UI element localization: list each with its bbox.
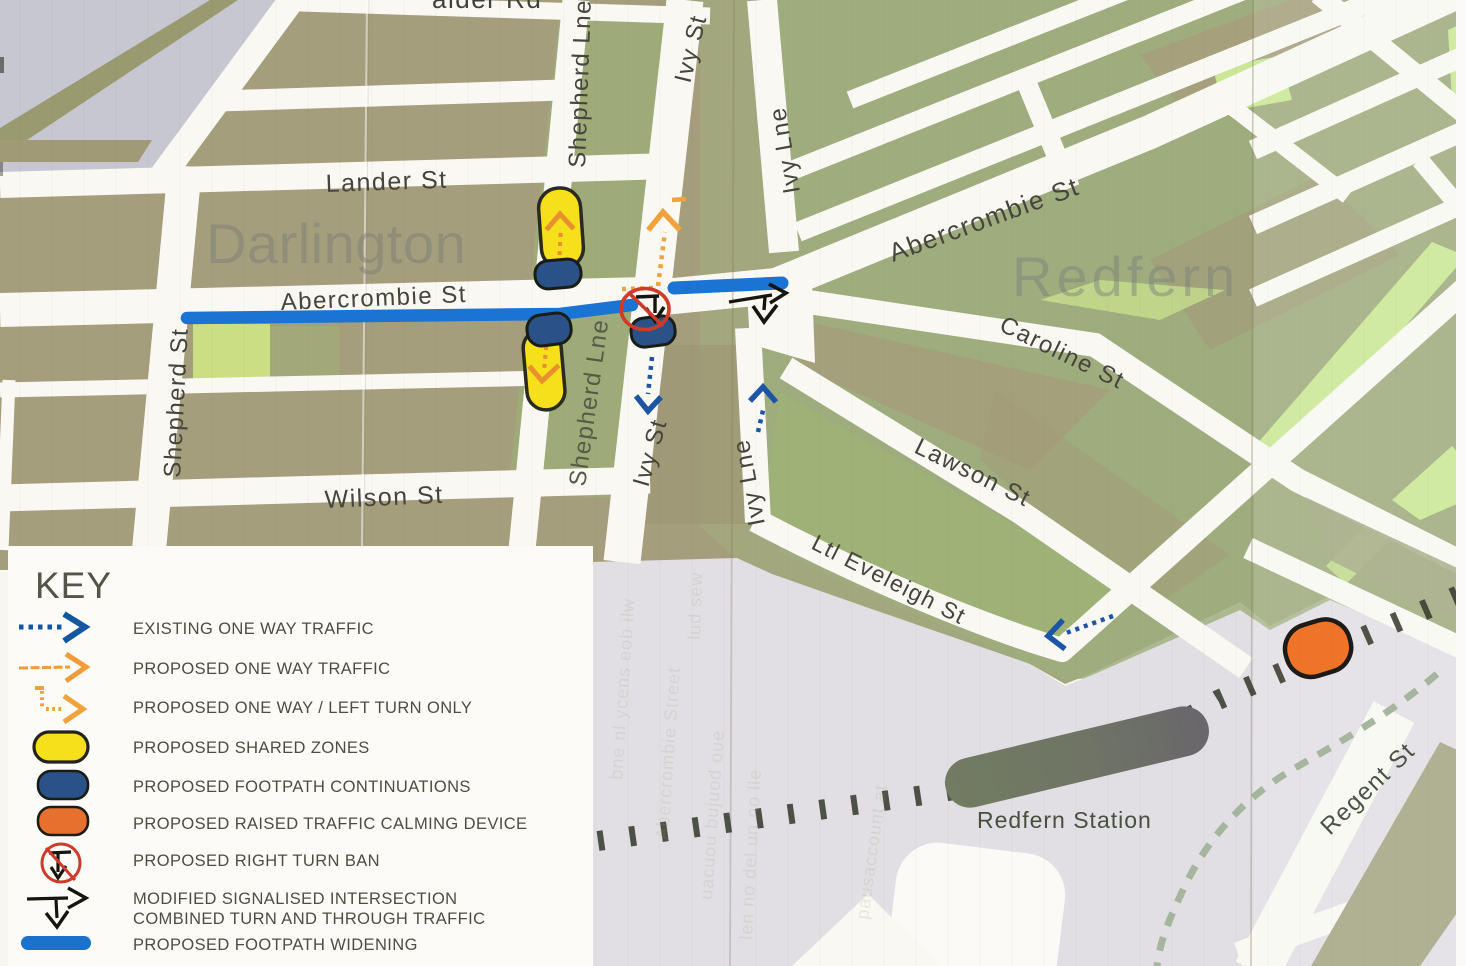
svg-text:MODIFIED SIGNALISED INTERSECTI: MODIFIED SIGNALISED INTERSECTION bbox=[133, 890, 458, 908]
svg-text:KEY: KEY bbox=[35, 565, 112, 606]
svg-text:PROPOSED RAISED TRAFFIC CALMIN: PROPOSED RAISED TRAFFIC CALMING DEVICE bbox=[133, 815, 527, 833]
svg-text:PROPOSED FOOTPATH WIDENING: PROPOSED FOOTPATH WIDENING bbox=[133, 936, 418, 954]
svg-text:Redfern Station: Redfern Station bbox=[977, 807, 1152, 833]
svg-text:PROPOSED SHARED ZONES: PROPOSED SHARED ZONES bbox=[133, 739, 370, 757]
svg-text:EXISTING ONE WAY TRAFFIC: EXISTING ONE WAY TRAFFIC bbox=[133, 620, 374, 638]
svg-text:Darlington: Darlington bbox=[206, 212, 466, 275]
svg-text:PROPOSED RIGHT TURN BAN: PROPOSED RIGHT TURN BAN bbox=[133, 852, 380, 870]
svg-text:PROPOSED ONE WAY TRAFFIC: PROPOSED ONE WAY TRAFFIC bbox=[133, 660, 390, 678]
svg-text:lud sew: lud sew bbox=[684, 571, 706, 640]
svg-text:PROPOSED ONE WAY / LEFT TURN O: PROPOSED ONE WAY / LEFT TURN ONLY bbox=[133, 699, 472, 717]
svg-text:Wilson St: Wilson St bbox=[324, 481, 444, 514]
svg-text:Redfern: Redfern bbox=[1012, 245, 1239, 308]
svg-text:alder Rd: alder Rd bbox=[432, 0, 542, 14]
svg-text:PROPOSED FOOTPATH CONTINUATION: PROPOSED FOOTPATH CONTINUATIONS bbox=[133, 778, 471, 796]
svg-text:Lander St: Lander St bbox=[325, 166, 448, 198]
svg-text:COMBINED TURN AND THROUGH TRAF: COMBINED TURN AND THROUGH TRAFFIC bbox=[133, 910, 485, 928]
